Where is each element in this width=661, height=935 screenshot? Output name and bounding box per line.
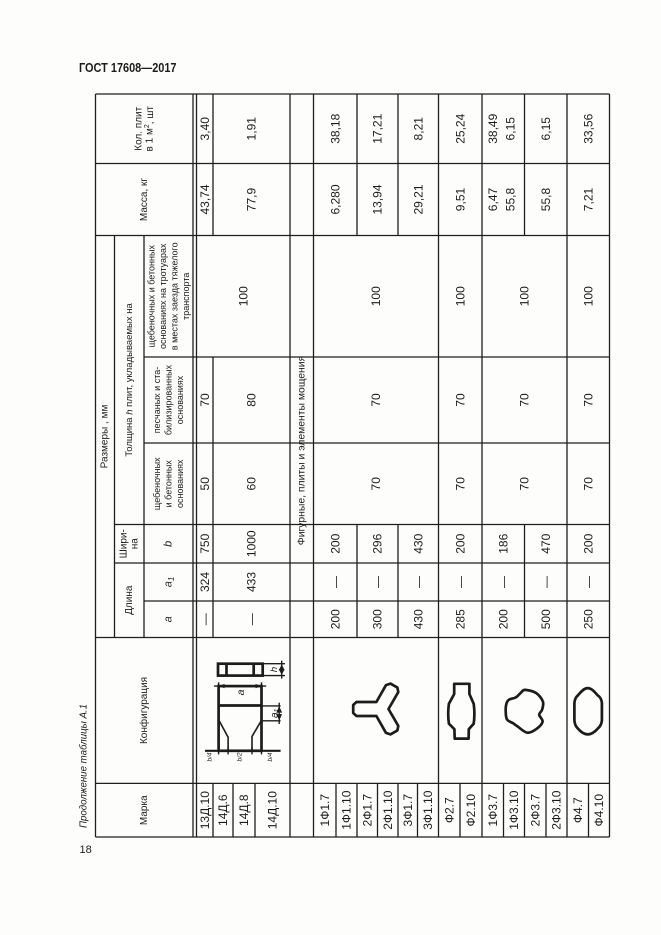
svg-text:430: 430 <box>411 609 425 629</box>
svg-text:Ф4.7: Ф4.7 <box>571 797 585 823</box>
svg-text:200: 200 <box>496 609 510 629</box>
svg-text:13,94: 13,94 <box>371 184 385 214</box>
svg-text:а: а <box>163 616 175 622</box>
svg-text:6,47: 6,47 <box>486 187 500 211</box>
svg-text:Длина: Длина <box>124 585 135 615</box>
svg-text:70: 70 <box>518 477 532 491</box>
svg-text:324: 324 <box>198 572 212 592</box>
svg-text:Толщина h плит, укладываемых н: Толщина h плит, укладываемых на <box>124 303 135 457</box>
svg-text:—: — <box>411 576 425 588</box>
svg-text:3Ф1.10: 3Ф1.10 <box>421 790 435 829</box>
svg-text:1Ф1.10: 1Ф1.10 <box>340 790 354 829</box>
svg-text:25,24: 25,24 <box>453 113 467 143</box>
svg-text:1Ф1.7: 1Ф1.7 <box>318 794 332 827</box>
svg-text:Фигурные, плиты и элементы мощ: Фигурные, плиты и элементы мощения <box>296 356 307 545</box>
svg-text:13Д.10: 13Д.10 <box>198 791 212 829</box>
svg-text:—: — <box>371 576 385 588</box>
svg-text:—: — <box>245 613 259 625</box>
svg-text:—: — <box>581 576 595 588</box>
svg-text:29,21: 29,21 <box>411 184 425 214</box>
svg-text:6,15: 6,15 <box>504 117 518 141</box>
svg-text:43,74: 43,74 <box>198 184 212 214</box>
svg-text:9,51: 9,51 <box>453 187 467 211</box>
svg-text:470: 470 <box>539 533 553 553</box>
svg-text:60: 60 <box>245 477 259 491</box>
svg-text:50: 50 <box>198 477 212 491</box>
svg-text:—: — <box>198 613 212 625</box>
svg-text:100: 100 <box>369 286 383 306</box>
svg-text:296: 296 <box>371 533 385 553</box>
svg-text:8,21: 8,21 <box>411 117 425 141</box>
svg-text:14Д.10: 14Д.10 <box>266 791 280 829</box>
svg-text:433: 433 <box>245 572 259 592</box>
svg-text:70: 70 <box>369 477 383 491</box>
svg-text:33,56: 33,56 <box>581 113 595 143</box>
svg-text:100: 100 <box>581 286 595 306</box>
svg-text:на: на <box>129 538 140 550</box>
svg-text:1Ф3.7: 1Ф3.7 <box>486 794 500 827</box>
svg-text:щебеночных: щебеночных <box>152 457 162 510</box>
svg-text:70: 70 <box>453 477 467 491</box>
svg-text:200: 200 <box>581 533 595 553</box>
svg-text:55,8: 55,8 <box>539 187 553 211</box>
svg-text:70: 70 <box>581 393 595 407</box>
svg-text:Ф4.10: Ф4.10 <box>592 794 606 827</box>
svg-text:7,21: 7,21 <box>581 187 595 211</box>
svg-text:в 1 м2, шт: в 1 м2, шт <box>143 106 155 152</box>
svg-text:18: 18 <box>80 844 92 856</box>
svg-text:2Ф1.10: 2Ф1.10 <box>381 790 395 829</box>
svg-text:2Ф3.7: 2Ф3.7 <box>528 794 542 827</box>
svg-text:70: 70 <box>453 393 467 407</box>
svg-text:основаниях: основаниях <box>175 375 185 424</box>
svg-text:основаниях: основаниях <box>175 459 185 508</box>
svg-text:b: b <box>163 541 175 547</box>
svg-text:14Д.8: 14Д.8 <box>237 794 251 826</box>
svg-text:ГОСТ 17608—2017: ГОСТ 17608—2017 <box>79 60 177 75</box>
svg-text:38,49: 38,49 <box>486 113 500 143</box>
svg-text:6,15: 6,15 <box>539 117 553 141</box>
svg-text:70: 70 <box>198 393 212 407</box>
svg-text:300: 300 <box>371 609 385 629</box>
svg-text:1,91: 1,91 <box>245 117 259 141</box>
svg-text:Ф2.10: Ф2.10 <box>464 794 478 827</box>
svg-text:Марка: Марка <box>139 795 150 825</box>
svg-text:430: 430 <box>411 533 425 553</box>
svg-text:70: 70 <box>518 393 532 407</box>
svg-text:70: 70 <box>581 477 595 491</box>
svg-text:Ф2.7: Ф2.7 <box>442 797 456 823</box>
svg-text:100: 100 <box>453 286 467 306</box>
svg-text:—: — <box>539 576 553 588</box>
svg-text:основаниях на тротуарах: основаниях на тротуарах <box>158 243 168 349</box>
svg-text:70: 70 <box>369 393 383 407</box>
svg-text:Масса, кг: Масса, кг <box>139 178 150 221</box>
svg-text:b/2: b/2 <box>237 752 244 761</box>
svg-text:80: 80 <box>245 393 259 407</box>
svg-text:Шири-: Шири- <box>118 529 129 558</box>
svg-text:3,40: 3,40 <box>198 117 212 141</box>
svg-text:2Ф3.10: 2Ф3.10 <box>550 790 564 829</box>
svg-text:h: h <box>269 667 280 672</box>
svg-text:750: 750 <box>198 533 212 553</box>
svg-text:100: 100 <box>518 286 532 306</box>
svg-text:285: 285 <box>453 609 467 629</box>
svg-text:b/4: b/4 <box>267 752 274 761</box>
svg-text:186: 186 <box>496 533 510 553</box>
svg-text:—: — <box>453 576 467 588</box>
svg-text:билизированных: билизированных <box>164 364 174 435</box>
svg-text:транспорта: транспорта <box>181 273 191 320</box>
svg-text:—: — <box>328 576 342 588</box>
svg-text:200: 200 <box>328 609 342 629</box>
svg-text:200: 200 <box>453 533 467 553</box>
svg-text:Размеры , мм: Размеры , мм <box>100 405 111 469</box>
svg-text:b/4: b/4 <box>207 752 214 761</box>
svg-text:500: 500 <box>539 609 553 629</box>
svg-text:17,21: 17,21 <box>371 113 385 143</box>
svg-text:77,9: 77,9 <box>245 187 259 211</box>
svg-text:1Ф3.10: 1Ф3.10 <box>507 790 521 829</box>
svg-text:6,280: 6,280 <box>328 184 342 214</box>
svg-text:14Д.6: 14Д.6 <box>216 794 230 826</box>
svg-text:а: а <box>235 689 247 695</box>
svg-text:2Ф1.7: 2Ф1.7 <box>360 794 374 827</box>
svg-text:200: 200 <box>328 533 342 553</box>
svg-text:щебеночных и бетонных: щебеночных и бетонных <box>146 245 156 348</box>
svg-text:песчаных и ста-: песчаных и ста- <box>152 367 162 433</box>
svg-text:1000: 1000 <box>245 530 259 557</box>
svg-text:100: 100 <box>236 286 250 306</box>
svg-text:Конфигурация: Конфигурация <box>138 677 150 744</box>
svg-text:250: 250 <box>581 609 595 629</box>
svg-text:и бетонных: и бетонных <box>164 460 174 508</box>
svg-text:Продолжение таблицы А.1: Продолжение таблицы А.1 <box>78 704 90 828</box>
svg-text:55,8: 55,8 <box>504 187 518 211</box>
svg-text:в местах заезда тяжелого: в местах заезда тяжелого <box>169 242 179 350</box>
svg-text:38,18: 38,18 <box>328 113 342 143</box>
svg-text:—: — <box>496 576 510 588</box>
svg-text:3Ф1.7: 3Ф1.7 <box>401 794 415 827</box>
